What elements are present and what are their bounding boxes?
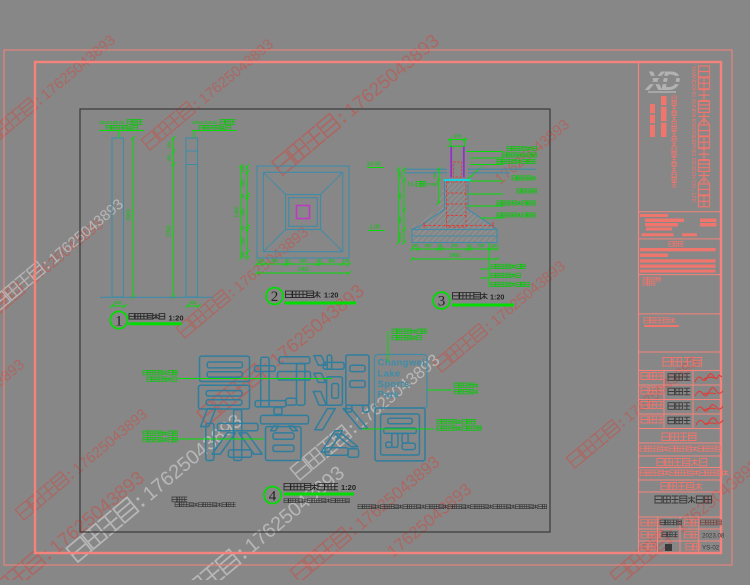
svg-text:50: 50 (467, 243, 472, 248)
svg-text:3: 3 (438, 294, 446, 310)
svg-text:SHANDONG XUNDA ENGINEERING DES: SHANDONG XUNDA ENGINEERING DESIGN CO., L… (690, 66, 696, 203)
svg-text:450: 450 (300, 258, 308, 263)
svg-text:350: 350 (167, 154, 172, 162)
svg-text:100: 100 (491, 243, 499, 248)
svg-text:100: 100 (167, 141, 172, 149)
svg-text:YS-02: YS-02 (702, 545, 720, 552)
svg-text:450: 450 (451, 243, 459, 248)
svg-text:200: 200 (454, 134, 462, 139)
svg-text:1: 1 (115, 314, 123, 330)
svg-text:1:20: 1:20 (169, 314, 184, 323)
svg-text:Changwei: Changwei (378, 358, 426, 369)
svg-text:100: 100 (412, 243, 420, 248)
svg-text:DL: DL (408, 182, 415, 188)
svg-text:-1.00: -1.00 (368, 225, 380, 231)
svg-text:200: 200 (189, 300, 197, 305)
svg-text:2023.08: 2023.08 (702, 533, 725, 540)
svg-text:P300: P300 (427, 182, 438, 187)
svg-text:50: 50 (317, 258, 322, 263)
svg-text:50: 50 (438, 243, 443, 248)
svg-text:2: 2 (271, 289, 279, 305)
svg-text:200X100X6: 200X100X6 (99, 120, 124, 126)
svg-text:350: 350 (271, 258, 279, 263)
svg-text:±0.00: ±0.00 (367, 162, 380, 168)
svg-text:200: 200 (114, 300, 122, 305)
svg-text:2900: 2900 (127, 209, 133, 221)
svg-text:350: 350 (328, 258, 336, 263)
svg-text:350: 350 (425, 243, 433, 248)
svg-text:Sports: Sports (378, 379, 410, 390)
svg-text:200X100X6: 200X100X6 (192, 120, 217, 126)
svg-text:150: 150 (433, 173, 437, 179)
svg-text:1450: 1450 (297, 267, 308, 273)
svg-text:1:20: 1:20 (341, 483, 356, 492)
svg-text:100: 100 (257, 258, 265, 263)
svg-text:4: 4 (269, 488, 277, 504)
svg-text:100: 100 (342, 258, 350, 263)
svg-text:Lake: Lake (378, 369, 401, 380)
svg-text:2350: 2350 (167, 225, 173, 237)
svg-text:Park: Park (378, 390, 400, 401)
svg-text:50: 50 (285, 258, 290, 263)
svg-text:350: 350 (477, 243, 485, 248)
svg-text:1450: 1450 (235, 206, 241, 217)
svg-text:1:20: 1:20 (324, 290, 338, 299)
svg-text:1450: 1450 (449, 253, 460, 259)
svg-text:1:20: 1:20 (490, 292, 504, 301)
